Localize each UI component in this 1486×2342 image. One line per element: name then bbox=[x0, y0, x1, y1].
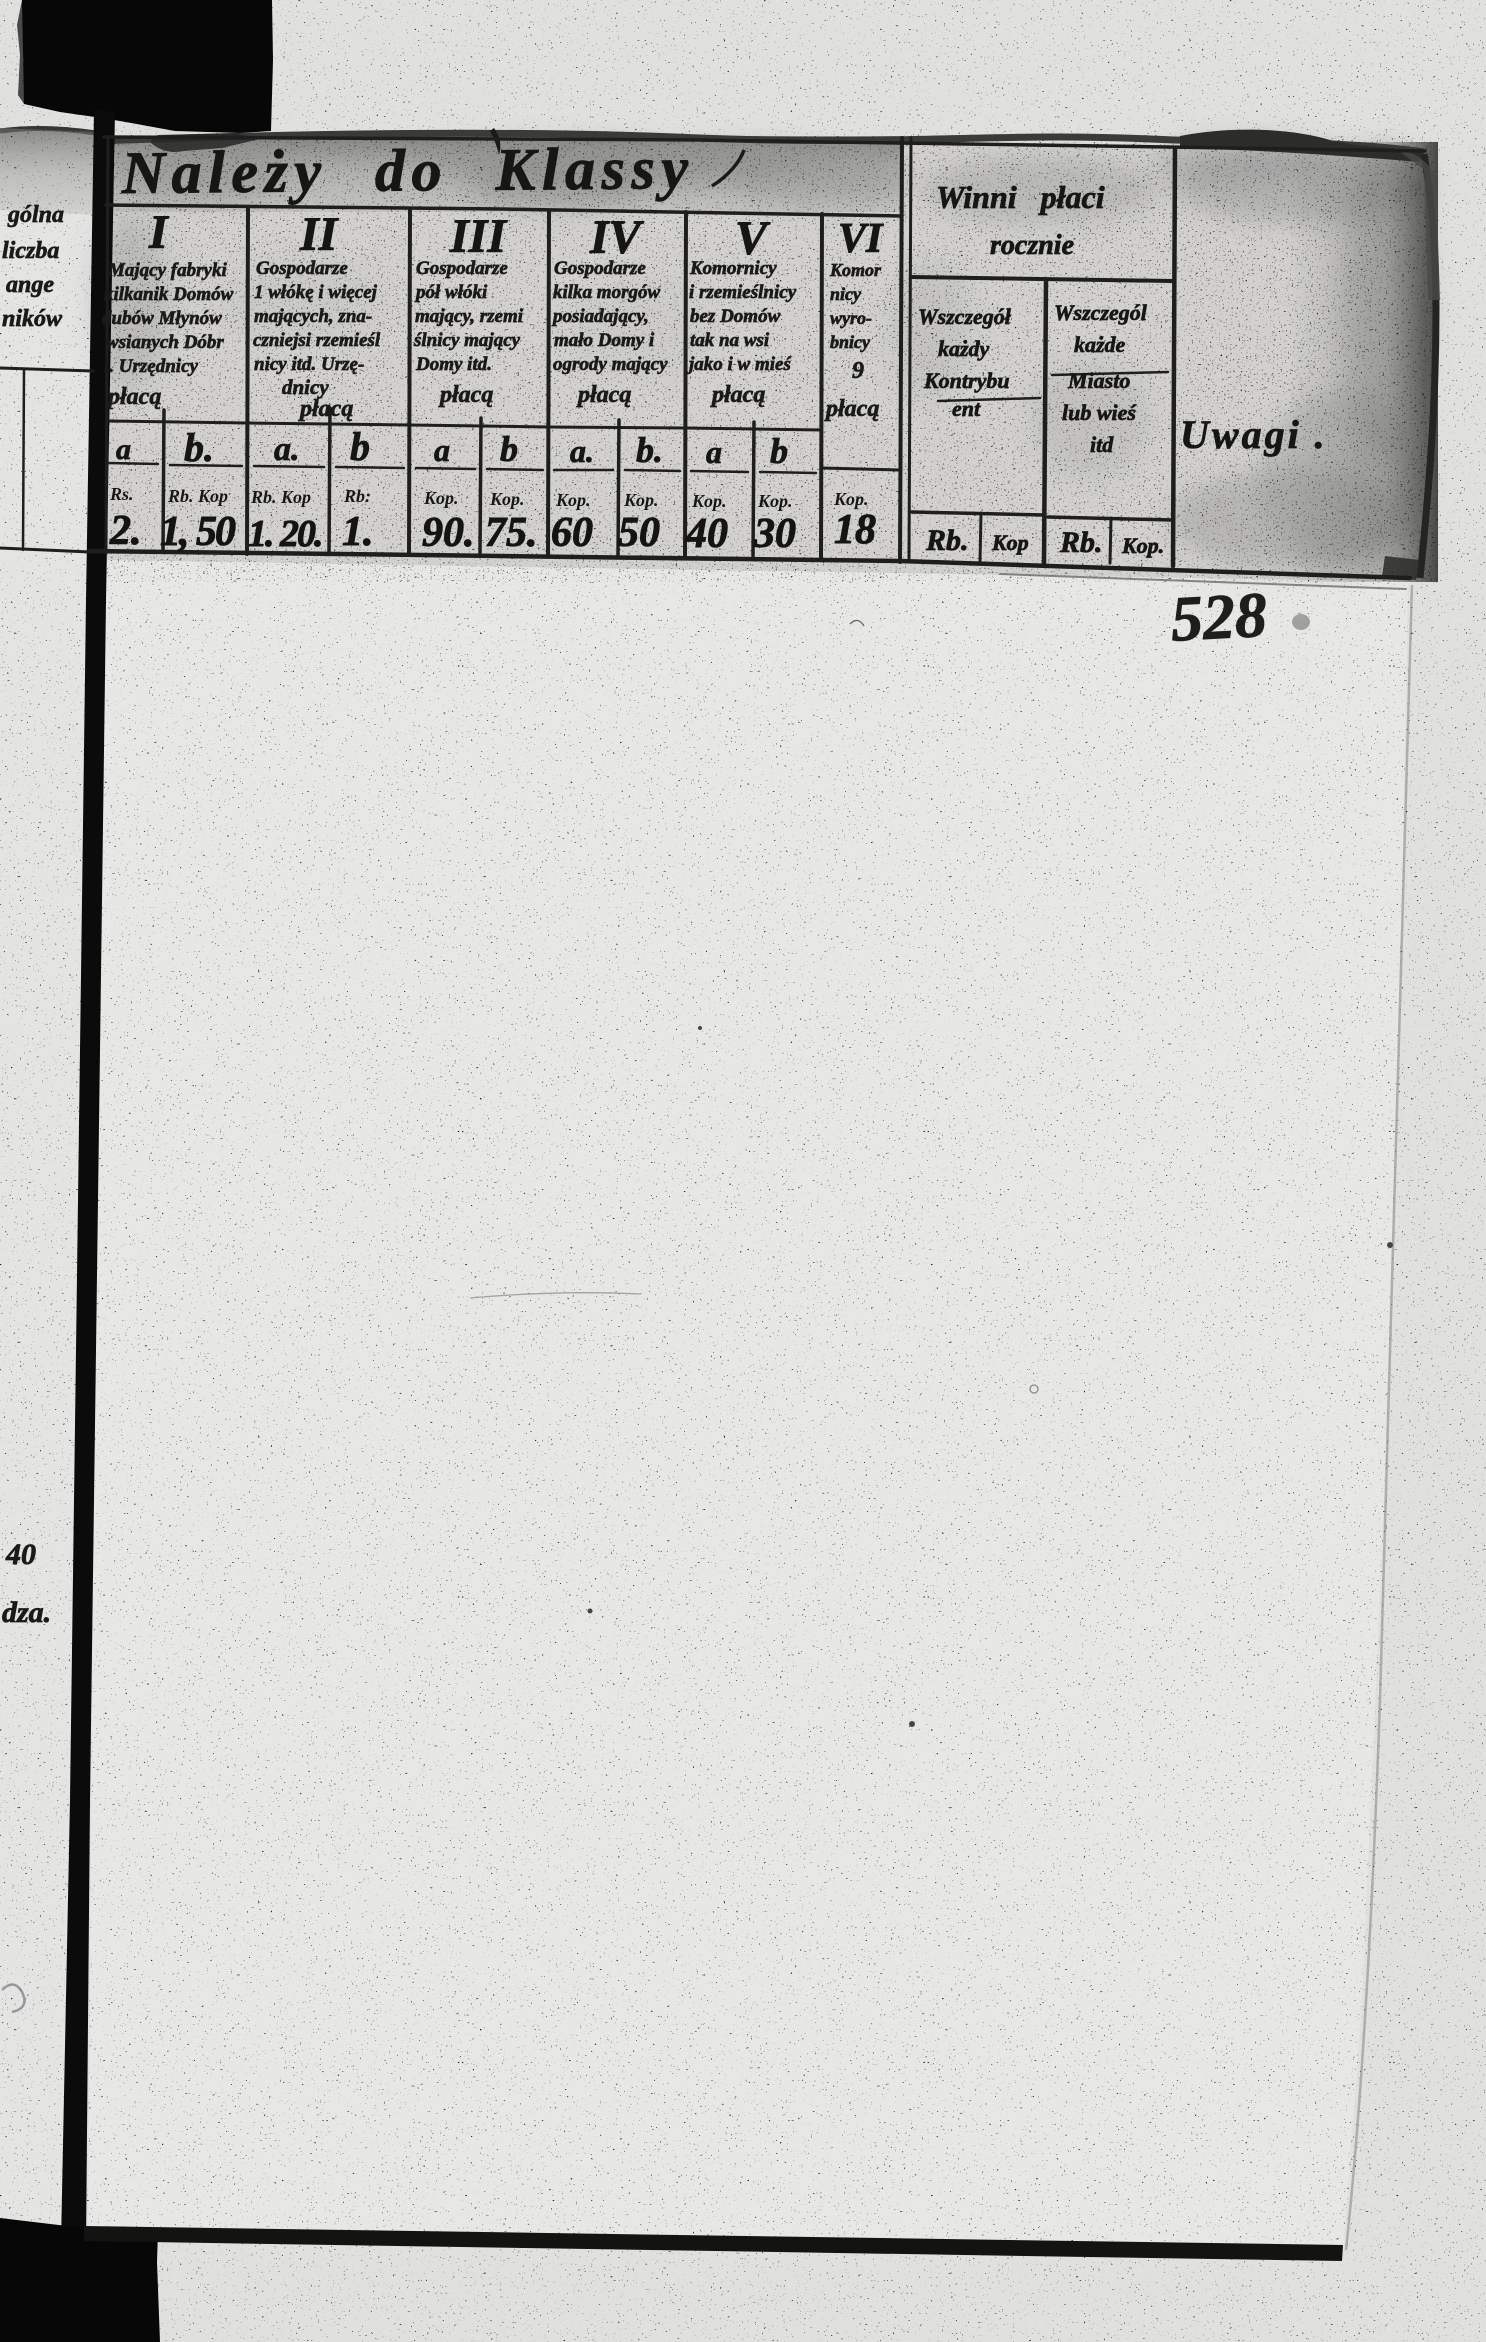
svg-text:Komornicy: Komornicy bbox=[689, 258, 777, 279]
svg-text:b.: b. bbox=[184, 425, 214, 470]
svg-text:Kop.: Kop. bbox=[489, 489, 525, 509]
svg-text:i. Urzędnicy: i. Urzędnicy bbox=[104, 356, 199, 377]
svg-text:90.: 90. bbox=[422, 510, 475, 556]
svg-text:jako i w mieś: jako i w mieś bbox=[686, 354, 791, 375]
svg-text:Kop.: Kop. bbox=[833, 489, 869, 509]
svg-text:dza.: dza. bbox=[2, 1596, 51, 1629]
svg-text:Mający fabryki: Mający fabryki bbox=[107, 260, 227, 281]
svg-text:1. 20.: 1. 20. bbox=[248, 513, 322, 555]
svg-text:Wszczegół: Wszczegół bbox=[918, 304, 1012, 329]
svg-text:ange: ange bbox=[6, 272, 54, 298]
svg-text:a.: a. bbox=[274, 431, 300, 468]
svg-text:Gospodarze: Gospodarze bbox=[554, 258, 646, 279]
svg-text:Kop.: Kop. bbox=[757, 491, 793, 511]
svg-text:kilka morgów: kilka morgów bbox=[553, 282, 660, 303]
svg-text:Gospodarze: Gospodarze bbox=[256, 258, 348, 279]
svg-text:Miasto: Miasto bbox=[1067, 368, 1130, 393]
svg-text:wyro-: wyro- bbox=[830, 308, 872, 328]
svg-text:Rb.: Rb. bbox=[925, 524, 969, 557]
svg-text:30: 30 bbox=[753, 511, 796, 557]
svg-text:ogrody mający: ogrody mający bbox=[553, 354, 668, 375]
svg-text:nicy itd. Urzę-: nicy itd. Urzę- bbox=[254, 354, 364, 375]
svg-text:rocznie: rocznie bbox=[990, 230, 1074, 261]
svg-text:Rb:: Rb: bbox=[343, 486, 371, 506]
svg-text:Kop.: Kop. bbox=[555, 490, 591, 510]
svg-text:Domy itd.: Domy itd. bbox=[415, 354, 492, 375]
svg-text:pół włóki: pół włóki bbox=[414, 282, 488, 303]
svg-text:Kontrybu: Kontrybu bbox=[923, 368, 1010, 393]
svg-text:1, 50: 1, 50 bbox=[160, 509, 236, 555]
svg-text:płacą: płacą bbox=[824, 396, 879, 422]
svg-text:wsianych Dóbr: wsianych Dóbr bbox=[106, 332, 224, 353]
svg-text:mających, zna-: mających, zna- bbox=[254, 306, 372, 327]
svg-text:40: 40 bbox=[5, 1538, 36, 1571]
svg-text:bez Domów: bez Domów bbox=[690, 306, 781, 327]
svg-text:IV: IV bbox=[589, 211, 645, 264]
svg-text:ent: ent bbox=[952, 396, 981, 421]
svg-text:Komor: Komor bbox=[829, 260, 882, 280]
svg-text:a.: a. bbox=[570, 433, 594, 469]
svg-text:kilkanik Domów: kilkanik Domów bbox=[104, 284, 234, 305]
svg-text:60: 60 bbox=[551, 510, 593, 556]
svg-text:50: 50 bbox=[618, 510, 660, 556]
svg-text:a: a bbox=[706, 434, 722, 470]
svg-text:a: a bbox=[434, 432, 450, 468]
svg-text:płacą: płacą bbox=[710, 382, 765, 408]
svg-text:Rb.: Rb. bbox=[1059, 526, 1103, 559]
svg-text:mający, rzemi: mający, rzemi bbox=[415, 306, 524, 327]
svg-text:płacą: płacą bbox=[106, 384, 161, 410]
svg-text:czniejsi rzemieśl: czniejsi rzemieśl bbox=[253, 330, 381, 351]
svg-text:Kop.: Kop. bbox=[1121, 533, 1164, 558]
svg-text:528: 528 bbox=[1169, 579, 1269, 655]
svg-text:płacą: płacą bbox=[438, 382, 493, 408]
svg-text:Wszczegól: Wszczegól bbox=[1054, 300, 1148, 325]
svg-text:Kop.: Kop. bbox=[423, 488, 459, 508]
svg-text:Rb. Kop: Rb. Kop bbox=[250, 487, 311, 507]
svg-text:18: 18 bbox=[834, 507, 876, 553]
svg-text:każdy: każdy bbox=[938, 336, 990, 361]
svg-text:liczba: liczba bbox=[2, 238, 59, 264]
svg-text:b: b bbox=[770, 431, 788, 471]
svg-text:Kop: Kop bbox=[991, 530, 1029, 555]
svg-text:nicy: nicy bbox=[830, 284, 862, 304]
svg-text:ślnicy mający: ślnicy mający bbox=[413, 330, 521, 351]
svg-text:posiadający,: posiadający, bbox=[551, 306, 649, 327]
svg-text:40: 40 bbox=[685, 511, 728, 557]
svg-text:itd: itd bbox=[1090, 432, 1114, 457]
svg-text:III: III bbox=[449, 210, 508, 263]
svg-text:Kop.: Kop. bbox=[623, 490, 659, 510]
svg-text:gólna: gólna bbox=[7, 202, 64, 228]
svg-text:Należy do Klassy: Należy do Klassy bbox=[121, 135, 695, 206]
svg-text:Rs.: Rs. bbox=[109, 484, 134, 504]
svg-text:Kop.: Kop. bbox=[691, 491, 727, 511]
svg-text:b.: b. bbox=[636, 430, 663, 470]
svg-text:2.: 2. bbox=[109, 508, 142, 554]
svg-text:75.: 75. bbox=[485, 510, 538, 556]
svg-text:b: b bbox=[350, 424, 370, 469]
svg-text:Winni płaci: Winni płaci bbox=[936, 179, 1105, 215]
svg-text:Gospodarze: Gospodarze bbox=[416, 258, 508, 279]
svg-text:a: a bbox=[116, 433, 131, 466]
svg-text:lub wieś: lub wieś bbox=[1062, 400, 1137, 425]
svg-text:każde: każde bbox=[1074, 332, 1126, 357]
svg-text:1 włókę i więcej: 1 włókę i więcej bbox=[254, 282, 378, 303]
svg-text:bnicy: bnicy bbox=[830, 332, 871, 352]
svg-text:płacą: płacą bbox=[576, 382, 631, 408]
svg-text:VI: VI bbox=[838, 216, 884, 262]
svg-text:i rzemieślnicy: i rzemieślnicy bbox=[689, 282, 797, 303]
svg-text:Rb. Kop: Rb. Kop bbox=[167, 486, 228, 506]
svg-text:I: I bbox=[148, 206, 170, 259]
svg-text:płacą: płacą bbox=[298, 396, 353, 422]
svg-text:mało Domy i: mało Domy i bbox=[554, 330, 655, 351]
svg-text:1.: 1. bbox=[342, 509, 374, 555]
svg-text:ników: ników bbox=[2, 306, 63, 332]
svg-text:Uwagi .: Uwagi . bbox=[1180, 412, 1328, 457]
svg-text:tak na wsi: tak na wsi bbox=[690, 330, 770, 351]
svg-text:II: II bbox=[299, 208, 340, 261]
svg-text:9: 9 bbox=[852, 358, 864, 384]
svg-text:dubów Młynów: dubów Młynów bbox=[102, 308, 222, 329]
svg-text:b: b bbox=[500, 429, 518, 469]
